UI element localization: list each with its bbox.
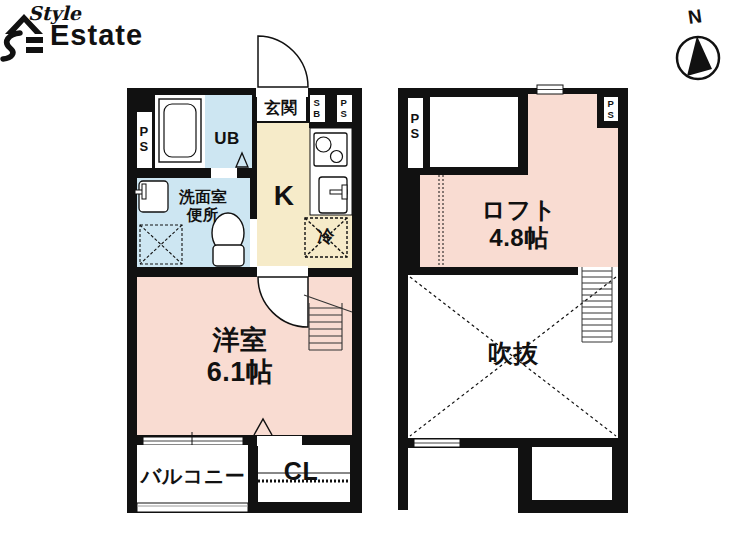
washbasin-icon xyxy=(135,181,168,212)
entrance-door-arc xyxy=(256,36,308,97)
north-compass-icon xyxy=(677,36,719,79)
kitchen-sink-icon xyxy=(319,177,347,213)
bathtub-icon xyxy=(155,95,205,168)
label-1f-shoe-box: S B xyxy=(313,97,320,119)
label-1f-unit-bath: UB xyxy=(214,129,240,149)
window-2f-top-icon xyxy=(537,85,563,94)
label-1f-washroom-toilet: 洗面室 便所 xyxy=(179,188,227,225)
stove-icon xyxy=(314,133,347,166)
label-1f-ps-left: P S xyxy=(139,124,148,155)
label-1f-entrance: 玄関 xyxy=(265,99,298,118)
window-2f-bottom-icon xyxy=(414,439,460,447)
label-1f-fridge: 冷 xyxy=(317,227,335,247)
label-1f-western-room: 洋室 6.1帖 xyxy=(207,325,274,389)
compass-north-label: N xyxy=(687,5,704,29)
floorplan-graphics xyxy=(0,0,750,550)
label-2f-ps-right: P S xyxy=(608,98,615,120)
brand-estate-text: Estate xyxy=(50,19,143,52)
label-2f-void: 吹抜 xyxy=(488,339,539,369)
balcony-railing xyxy=(137,503,248,512)
label-1f-closet: CL xyxy=(284,457,318,487)
floor1-plan xyxy=(127,36,362,513)
label-2f-loft: ロフト 4.8帖 xyxy=(481,196,556,253)
floor2-plan xyxy=(398,85,628,513)
label-1f-ps-right: P S xyxy=(341,97,348,119)
label-1f-kitchen: K xyxy=(274,179,295,212)
label-1f-balcony: バルコニー xyxy=(141,465,245,489)
void-over-entrance xyxy=(430,97,518,167)
label-2f-ps-left: P S xyxy=(410,111,419,142)
floorplan-page: Style Estate N P S UB 玄関 S B P S K 洗面室 便… xyxy=(0,0,750,550)
